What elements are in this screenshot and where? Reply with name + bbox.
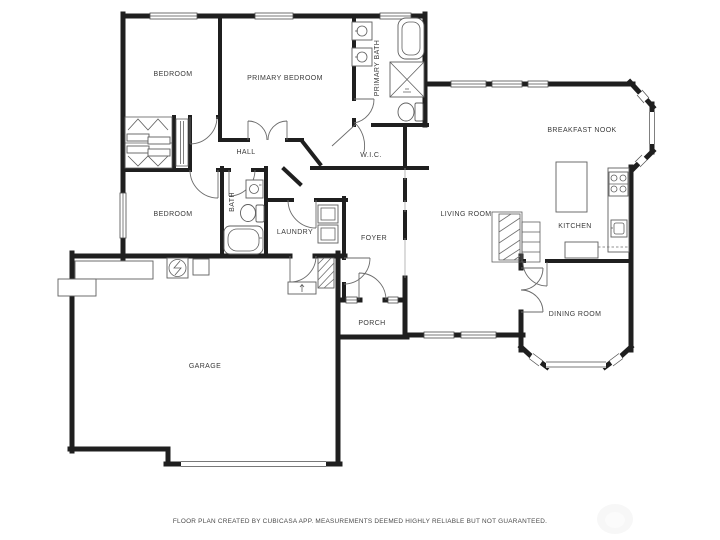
utility-box-icon bbox=[193, 259, 209, 275]
linen-closet-icon bbox=[176, 119, 188, 166]
sink-icon bbox=[246, 180, 263, 198]
room-label-living-room: LIVING ROOM bbox=[440, 211, 491, 218]
room-label-garage: GARAGE bbox=[189, 363, 221, 370]
kitchen-island-icon bbox=[556, 162, 587, 212]
toilet-icon bbox=[241, 205, 265, 223]
door-icon bbox=[190, 99, 547, 312]
fireplace-icon bbox=[492, 212, 540, 262]
room-label-primary-bath: PRIMARY BATH bbox=[374, 40, 381, 97]
windows bbox=[120, 13, 655, 467]
washer-dryer-icon bbox=[318, 205, 338, 243]
room-label-primary-bedroom: PRIMARY BEDROOM bbox=[247, 75, 323, 82]
room-label-hall: HALL bbox=[236, 149, 255, 156]
doors bbox=[190, 99, 547, 312]
closet-icon bbox=[125, 117, 172, 168]
room-label-dining-room: DINING ROOM bbox=[549, 311, 602, 318]
bathtub-icon bbox=[224, 226, 263, 254]
stove-icon bbox=[609, 172, 628, 196]
workbench-icon bbox=[75, 261, 153, 279]
shower-icon bbox=[390, 62, 424, 97]
room-label-laundry: LAUNDRY bbox=[277, 229, 313, 236]
window-icon bbox=[120, 13, 655, 467]
cubicasa-logo-icon bbox=[597, 504, 633, 534]
room-label-bath: BATH bbox=[229, 192, 236, 212]
water-heater-icon bbox=[167, 258, 188, 278]
floor-plan-drawing: BEDROOM PRIMARY BEDROOM PRIMARY BATH HAL… bbox=[0, 0, 720, 540]
room-label-bedroom-top: BEDROOM bbox=[154, 71, 193, 78]
room-label-porch: PORCH bbox=[358, 320, 385, 327]
room-label-kitchen: KITCHEN bbox=[558, 223, 592, 230]
pad-icon bbox=[58, 279, 96, 296]
toilet-icon bbox=[398, 103, 423, 121]
stair-hatch-icon bbox=[318, 258, 334, 288]
footer-disclaimer: FLOOR PLAN CREATED BY CUBICASA APP. MEAS… bbox=[173, 518, 547, 525]
floor-plan-page: BEDROOM PRIMARY BEDROOM PRIMARY BATH HAL… bbox=[0, 0, 720, 540]
entry-step-icon bbox=[288, 282, 316, 294]
bathtub-icon bbox=[398, 18, 424, 59]
room-label-foyer: FOYER bbox=[361, 235, 387, 242]
room-label-wic: W.I.C. bbox=[360, 152, 381, 159]
room-label-breakfast-nook: BREAKFAST NOOK bbox=[547, 127, 616, 134]
room-label-bedroom-left: BEDROOM bbox=[154, 211, 193, 218]
kitchen-sink-icon bbox=[611, 220, 627, 237]
